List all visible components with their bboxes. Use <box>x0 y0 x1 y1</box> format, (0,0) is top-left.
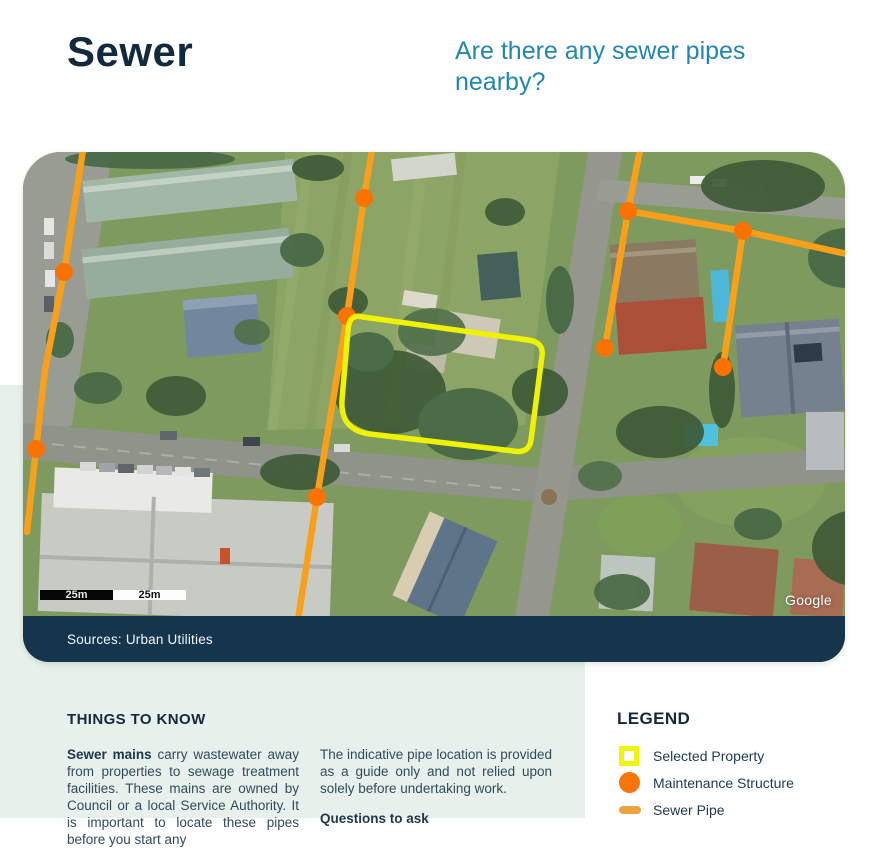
scale-label-left: 25m <box>65 590 87 600</box>
legend-label: Sewer Pipe <box>653 802 725 818</box>
things-column-1: Sewer mains carry wastewater away from p… <box>67 746 299 848</box>
scale-segment-white: 25m <box>113 590 186 600</box>
legend-label: Maintenance Structure <box>653 775 794 791</box>
things-paragraph-2: The indicative pipe location is provided… <box>320 746 552 797</box>
selected-property-icon <box>619 746 642 766</box>
things-paragraph-1-rest: carry wastewater away from properties to… <box>67 747 299 847</box>
sewer-map: 25m 25m Google Sources: Urban Utilities <box>23 152 845 662</box>
page-question: Are there any sewer pipes nearby? <box>455 36 785 98</box>
things-to-know-columns: Sewer mains carry wastewater away from p… <box>67 746 553 848</box>
legend: Selected Property Maintenance Structure … <box>619 742 794 823</box>
maintenance-structure-icon <box>619 772 642 793</box>
scale-label-right: 25m <box>138 590 160 600</box>
legend-item-selected-property: Selected Property <box>619 742 794 769</box>
things-to-know-heading: THINGS TO KNOW <box>67 711 206 728</box>
sewer-pipe-icon <box>619 806 642 814</box>
legend-item-sewer-pipe: Sewer Pipe <box>619 796 794 823</box>
report-page: Sewer Are there any sewer pipes nearby? <box>0 0 873 818</box>
satellite-map-image <box>23 152 845 617</box>
legend-label: Selected Property <box>653 748 764 764</box>
questions-to-ask-heading: Questions to ask <box>320 811 552 826</box>
map-scale-bar: 25m 25m <box>40 590 186 600</box>
things-column-2: The indicative pipe location is provided… <box>320 746 552 848</box>
things-paragraph-1-bold: Sewer mains <box>67 747 152 762</box>
legend-heading: LEGEND <box>617 709 690 729</box>
things-paragraph-1: Sewer mains carry wastewater away from p… <box>67 746 299 848</box>
google-watermark: Google <box>785 592 832 608</box>
sources-bar: Sources: Urban Utilities <box>23 616 845 662</box>
sources-text: Sources: Urban Utilities <box>23 632 213 647</box>
scale-segment-black: 25m <box>40 590 113 600</box>
page-title: Sewer <box>67 28 193 76</box>
legend-item-maintenance-structure: Maintenance Structure <box>619 769 794 796</box>
